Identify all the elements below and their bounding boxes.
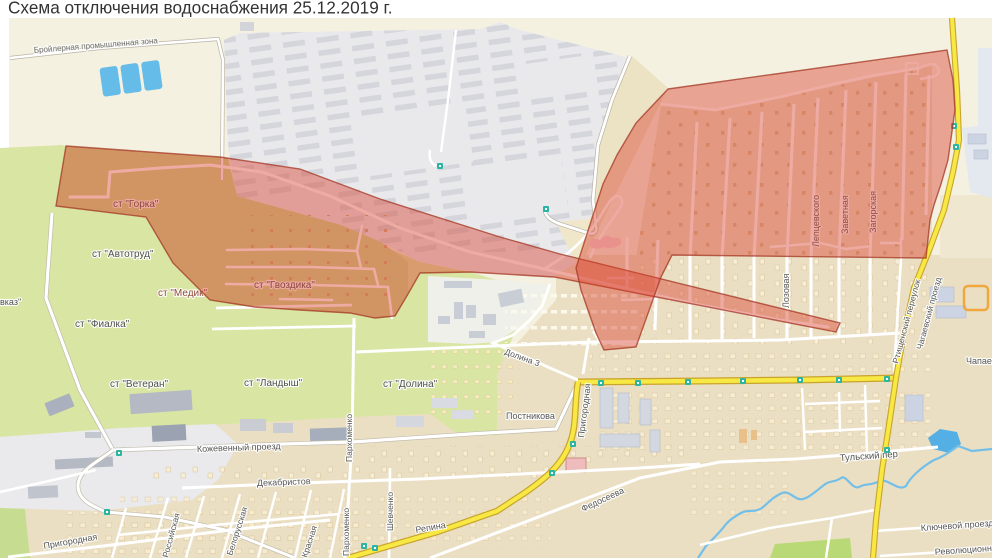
svg-text:ст "Автотруд": ст "Автотруд" xyxy=(92,249,154,260)
svg-text:вказ": вказ" xyxy=(0,297,21,307)
svg-text:Шевченко: Шевченко xyxy=(385,492,395,531)
svg-text:Пархоменко: Пархоменко xyxy=(344,414,354,462)
svg-text:ст "Ветеран": ст "Ветеран" xyxy=(110,379,168,390)
svg-text:Схема отключения водоснабжения: Схема отключения водоснабжения 25.12.201… xyxy=(8,0,393,18)
svg-text:Декабристов: Декабристов xyxy=(257,476,311,488)
svg-text:Чапаевская: Чапаевская xyxy=(966,356,992,366)
svg-text:Постникова: Постникова xyxy=(506,411,555,421)
svg-text:ст "Долина": ст "Долина" xyxy=(383,379,438,390)
svg-text:ст "Фиалка": ст "Фиалка" xyxy=(75,319,130,330)
svg-text:Пархоменко: Пархоменко xyxy=(341,508,351,556)
svg-text:ст "Ландыш": ст "Ландыш" xyxy=(244,378,303,389)
svg-text:Лозовая: Лозовая xyxy=(781,273,791,308)
